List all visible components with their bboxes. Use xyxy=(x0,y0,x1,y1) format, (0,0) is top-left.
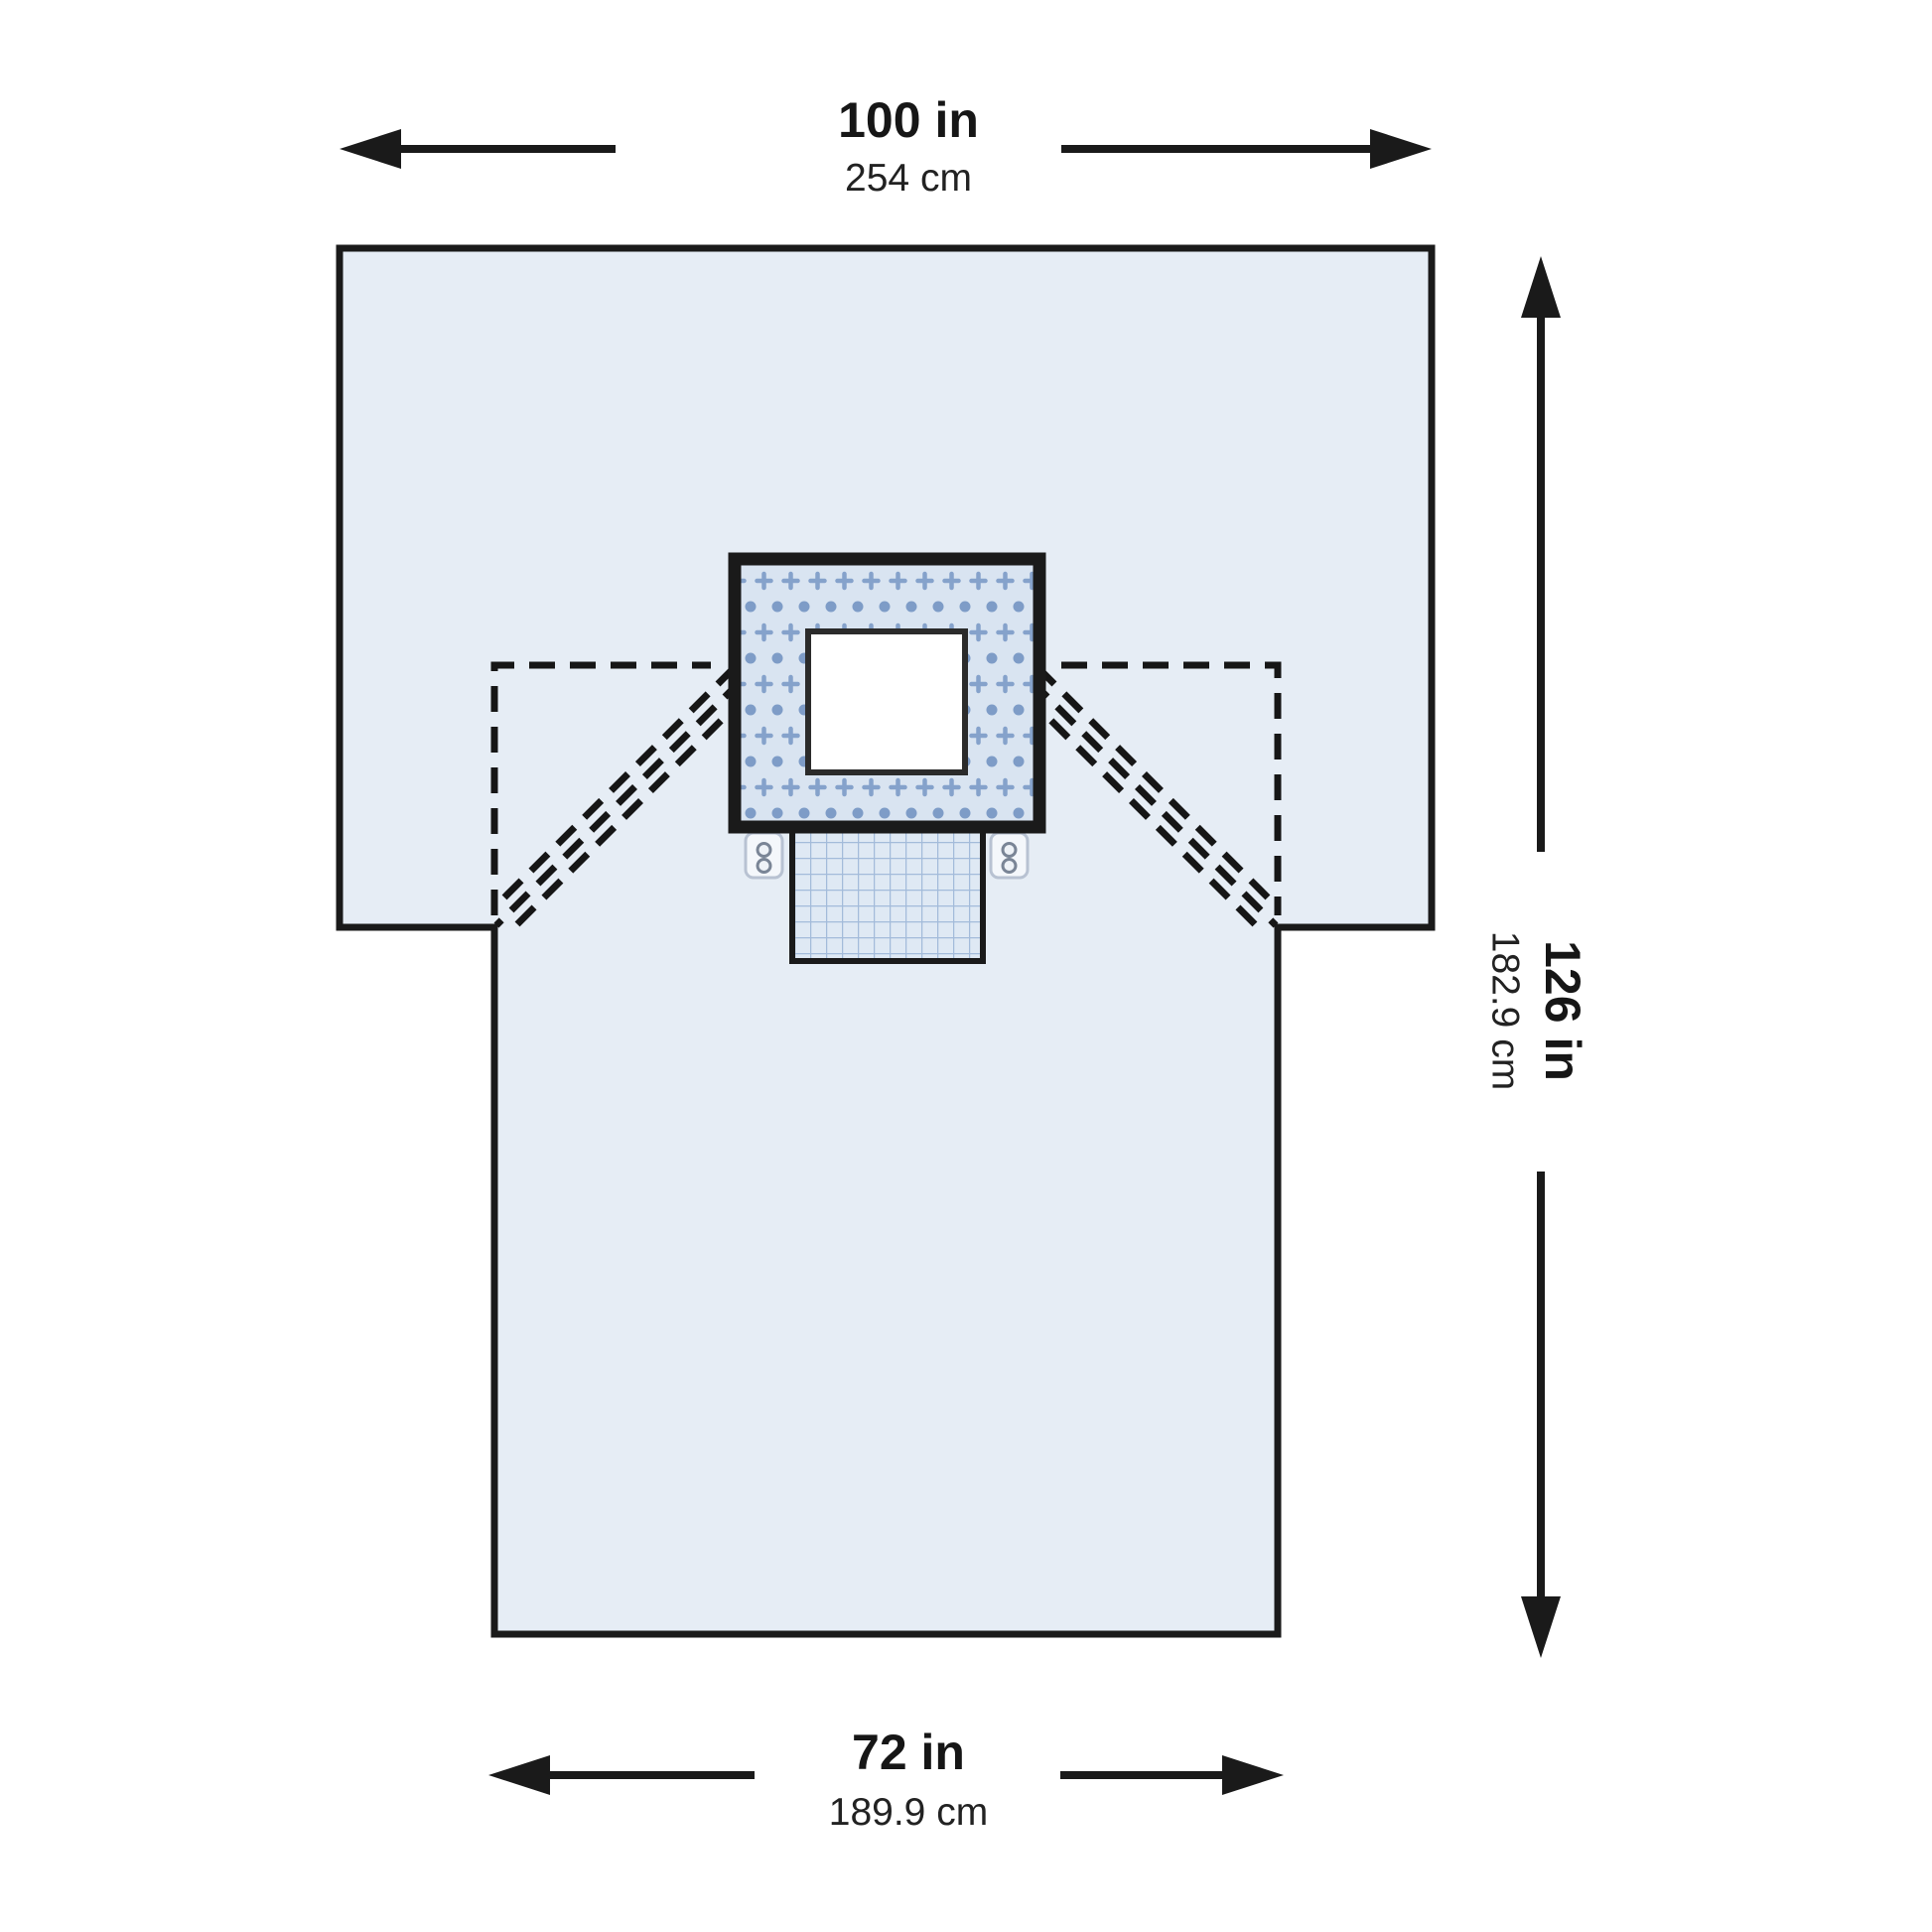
arrow-down-icon xyxy=(1521,1596,1561,1658)
surgical-drape-diagram: 100 in 254 cm 126 in 182.9 cm 72 in 189.… xyxy=(0,0,1932,1932)
tab-hole xyxy=(1003,860,1016,873)
tube-holder-tab-left xyxy=(746,833,782,878)
bottom-width-cm-label: 189.9 cm xyxy=(829,1791,988,1834)
dimension-side: 126 in 182.9 cm xyxy=(1484,256,1591,1658)
side-length-cm-label: 182.9 cm xyxy=(1484,931,1527,1090)
tab-hole xyxy=(1003,844,1016,857)
arrow-right-icon xyxy=(1370,129,1432,169)
tab-hole xyxy=(758,844,770,857)
tube-holder-tab-right xyxy=(991,833,1028,878)
arrow-left-icon xyxy=(488,1755,550,1795)
top-width-cm-label: 254 cm xyxy=(845,157,972,200)
dimension-bottom: 72 in 189.9 cm xyxy=(488,1725,1284,1834)
side-length-inches-label: 126 in xyxy=(1535,940,1590,1081)
top-width-inches-label: 100 in xyxy=(838,92,979,148)
dimension-top: 100 in 254 cm xyxy=(340,92,1432,200)
arrow-up-icon xyxy=(1521,256,1561,318)
fenestration-window xyxy=(808,631,965,772)
instrument-pouch xyxy=(792,824,983,961)
tab-hole xyxy=(758,860,770,873)
bottom-width-inches-label: 72 in xyxy=(852,1725,965,1780)
arrow-right-icon xyxy=(1222,1755,1284,1795)
diagram-canvas: 100 in 254 cm 126 in 182.9 cm 72 in 189.… xyxy=(0,0,1932,1932)
arrow-left-icon xyxy=(340,129,401,169)
